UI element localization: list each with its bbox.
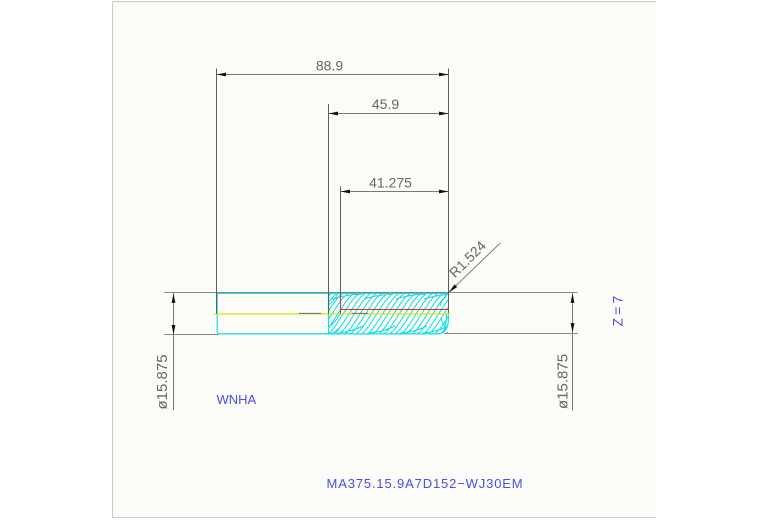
svg-text:45.9: 45.9 <box>372 96 399 112</box>
svg-text:WNHA: WNHA <box>217 392 257 407</box>
svg-text:88.9: 88.9 <box>316 58 343 74</box>
svg-text:Z=7: Z=7 <box>610 293 626 327</box>
svg-text:ø15.875: ø15.875 <box>154 354 171 409</box>
svg-text:MA375.15.9A7D152−WJ30EM: MA375.15.9A7D152−WJ30EM <box>327 476 524 491</box>
svg-text:ø15.875: ø15.875 <box>555 354 572 409</box>
svg-text:41.275: 41.275 <box>369 174 412 190</box>
